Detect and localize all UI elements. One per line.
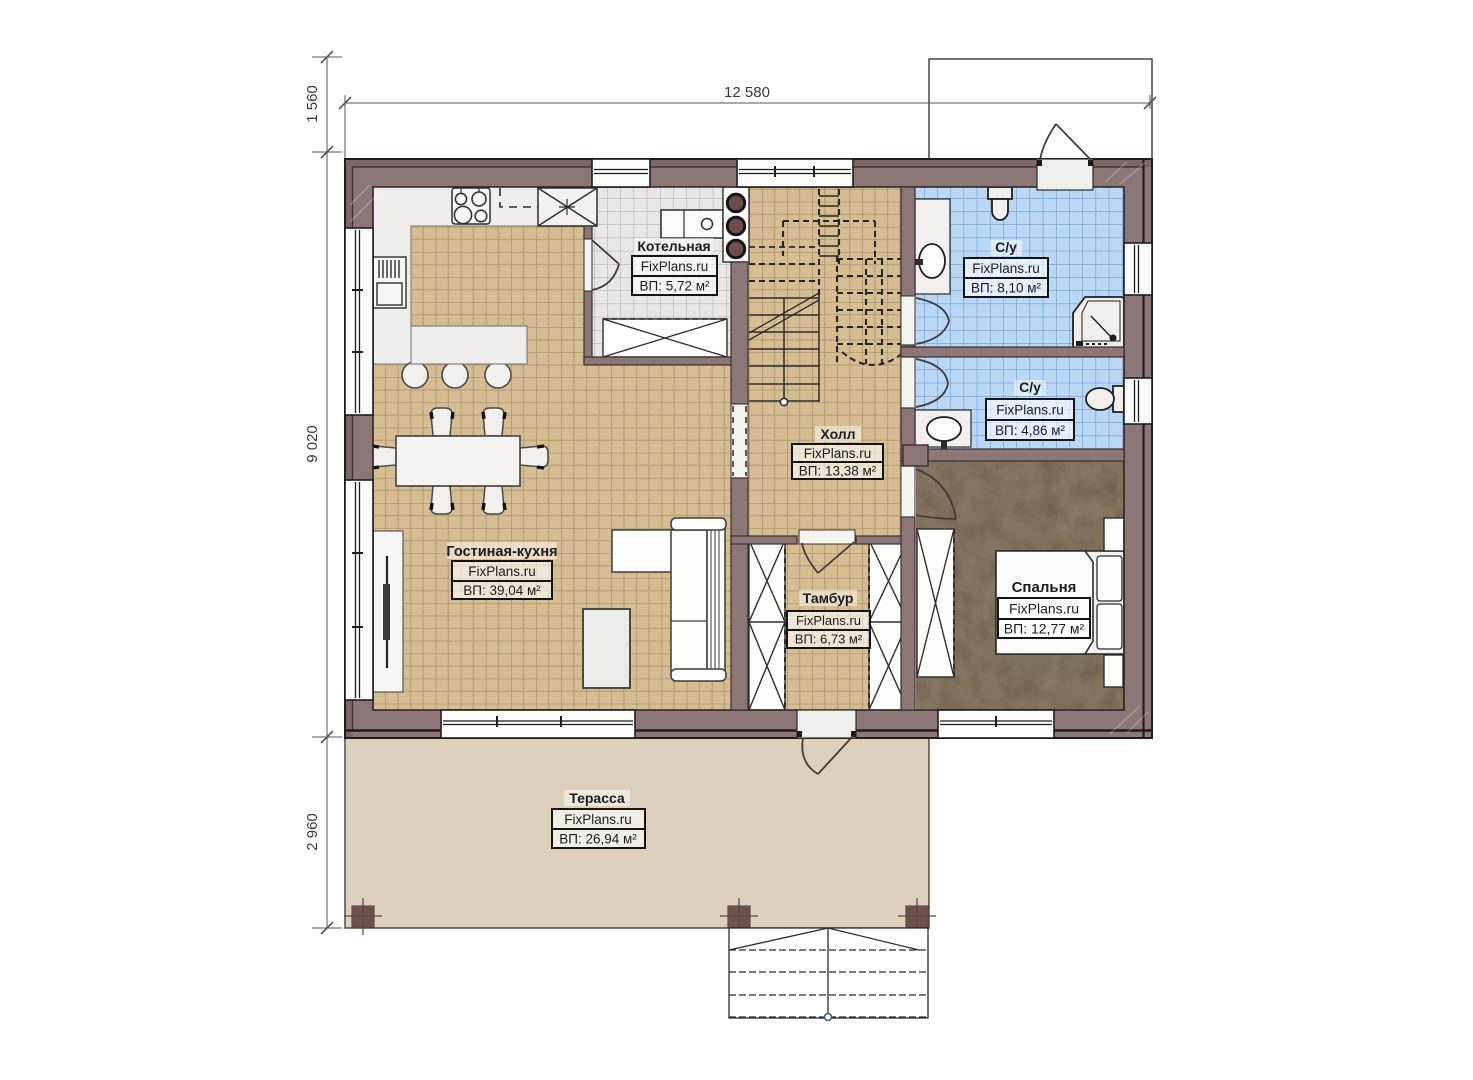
svg-text:2 960: 2 960 xyxy=(304,813,321,851)
svg-text:FixPlans.ru: FixPlans.ru xyxy=(796,613,861,628)
svg-text:ВП: 8,10 м²: ВП: 8,10 м² xyxy=(971,281,1042,296)
svg-text:Холл: Холл xyxy=(820,426,855,442)
svg-text:9 020: 9 020 xyxy=(304,425,321,463)
svg-text:ВП: 39,04 м²: ВП: 39,04 м² xyxy=(463,583,541,598)
svg-text:12 580: 12 580 xyxy=(724,84,770,101)
svg-text:ВП: 12,77 м²: ВП: 12,77 м² xyxy=(1004,621,1085,637)
svg-text:ВП: 13,38 м²: ВП: 13,38 м² xyxy=(799,464,877,479)
svg-text:ВП: 26,94 м²: ВП: 26,94 м² xyxy=(559,832,637,847)
svg-text:FixPlans.ru: FixPlans.ru xyxy=(641,259,709,274)
svg-text:С/у: С/у xyxy=(995,239,1017,255)
svg-text:Котельная: Котельная xyxy=(637,238,710,254)
svg-text:FixPlans.ru: FixPlans.ru xyxy=(468,564,536,579)
svg-text:Гостиная-кухня: Гостиная-кухня xyxy=(446,544,557,560)
svg-text:ВП: 6,73 м²: ВП: 6,73 м² xyxy=(795,632,863,647)
svg-text:С/у: С/у xyxy=(1019,379,1041,395)
svg-text:FixPlans.ru: FixPlans.ru xyxy=(996,403,1064,418)
svg-text:Тамбур: Тамбур xyxy=(803,590,854,606)
svg-text:Терасса: Терасса xyxy=(569,790,625,806)
svg-text:FixPlans.ru: FixPlans.ru xyxy=(564,812,632,827)
svg-text:FixPlans.ru: FixPlans.ru xyxy=(804,446,872,461)
svg-text:FixPlans.ru: FixPlans.ru xyxy=(972,261,1040,276)
svg-text:Спальня: Спальня xyxy=(1012,579,1077,596)
svg-text:ВП: 4,86 м²: ВП: 4,86 м² xyxy=(995,423,1066,438)
svg-text:FixPlans.ru: FixPlans.ru xyxy=(1009,601,1079,617)
svg-text:ВП: 5,72 м²: ВП: 5,72 м² xyxy=(639,279,710,294)
svg-text:1 560: 1 560 xyxy=(304,85,321,123)
